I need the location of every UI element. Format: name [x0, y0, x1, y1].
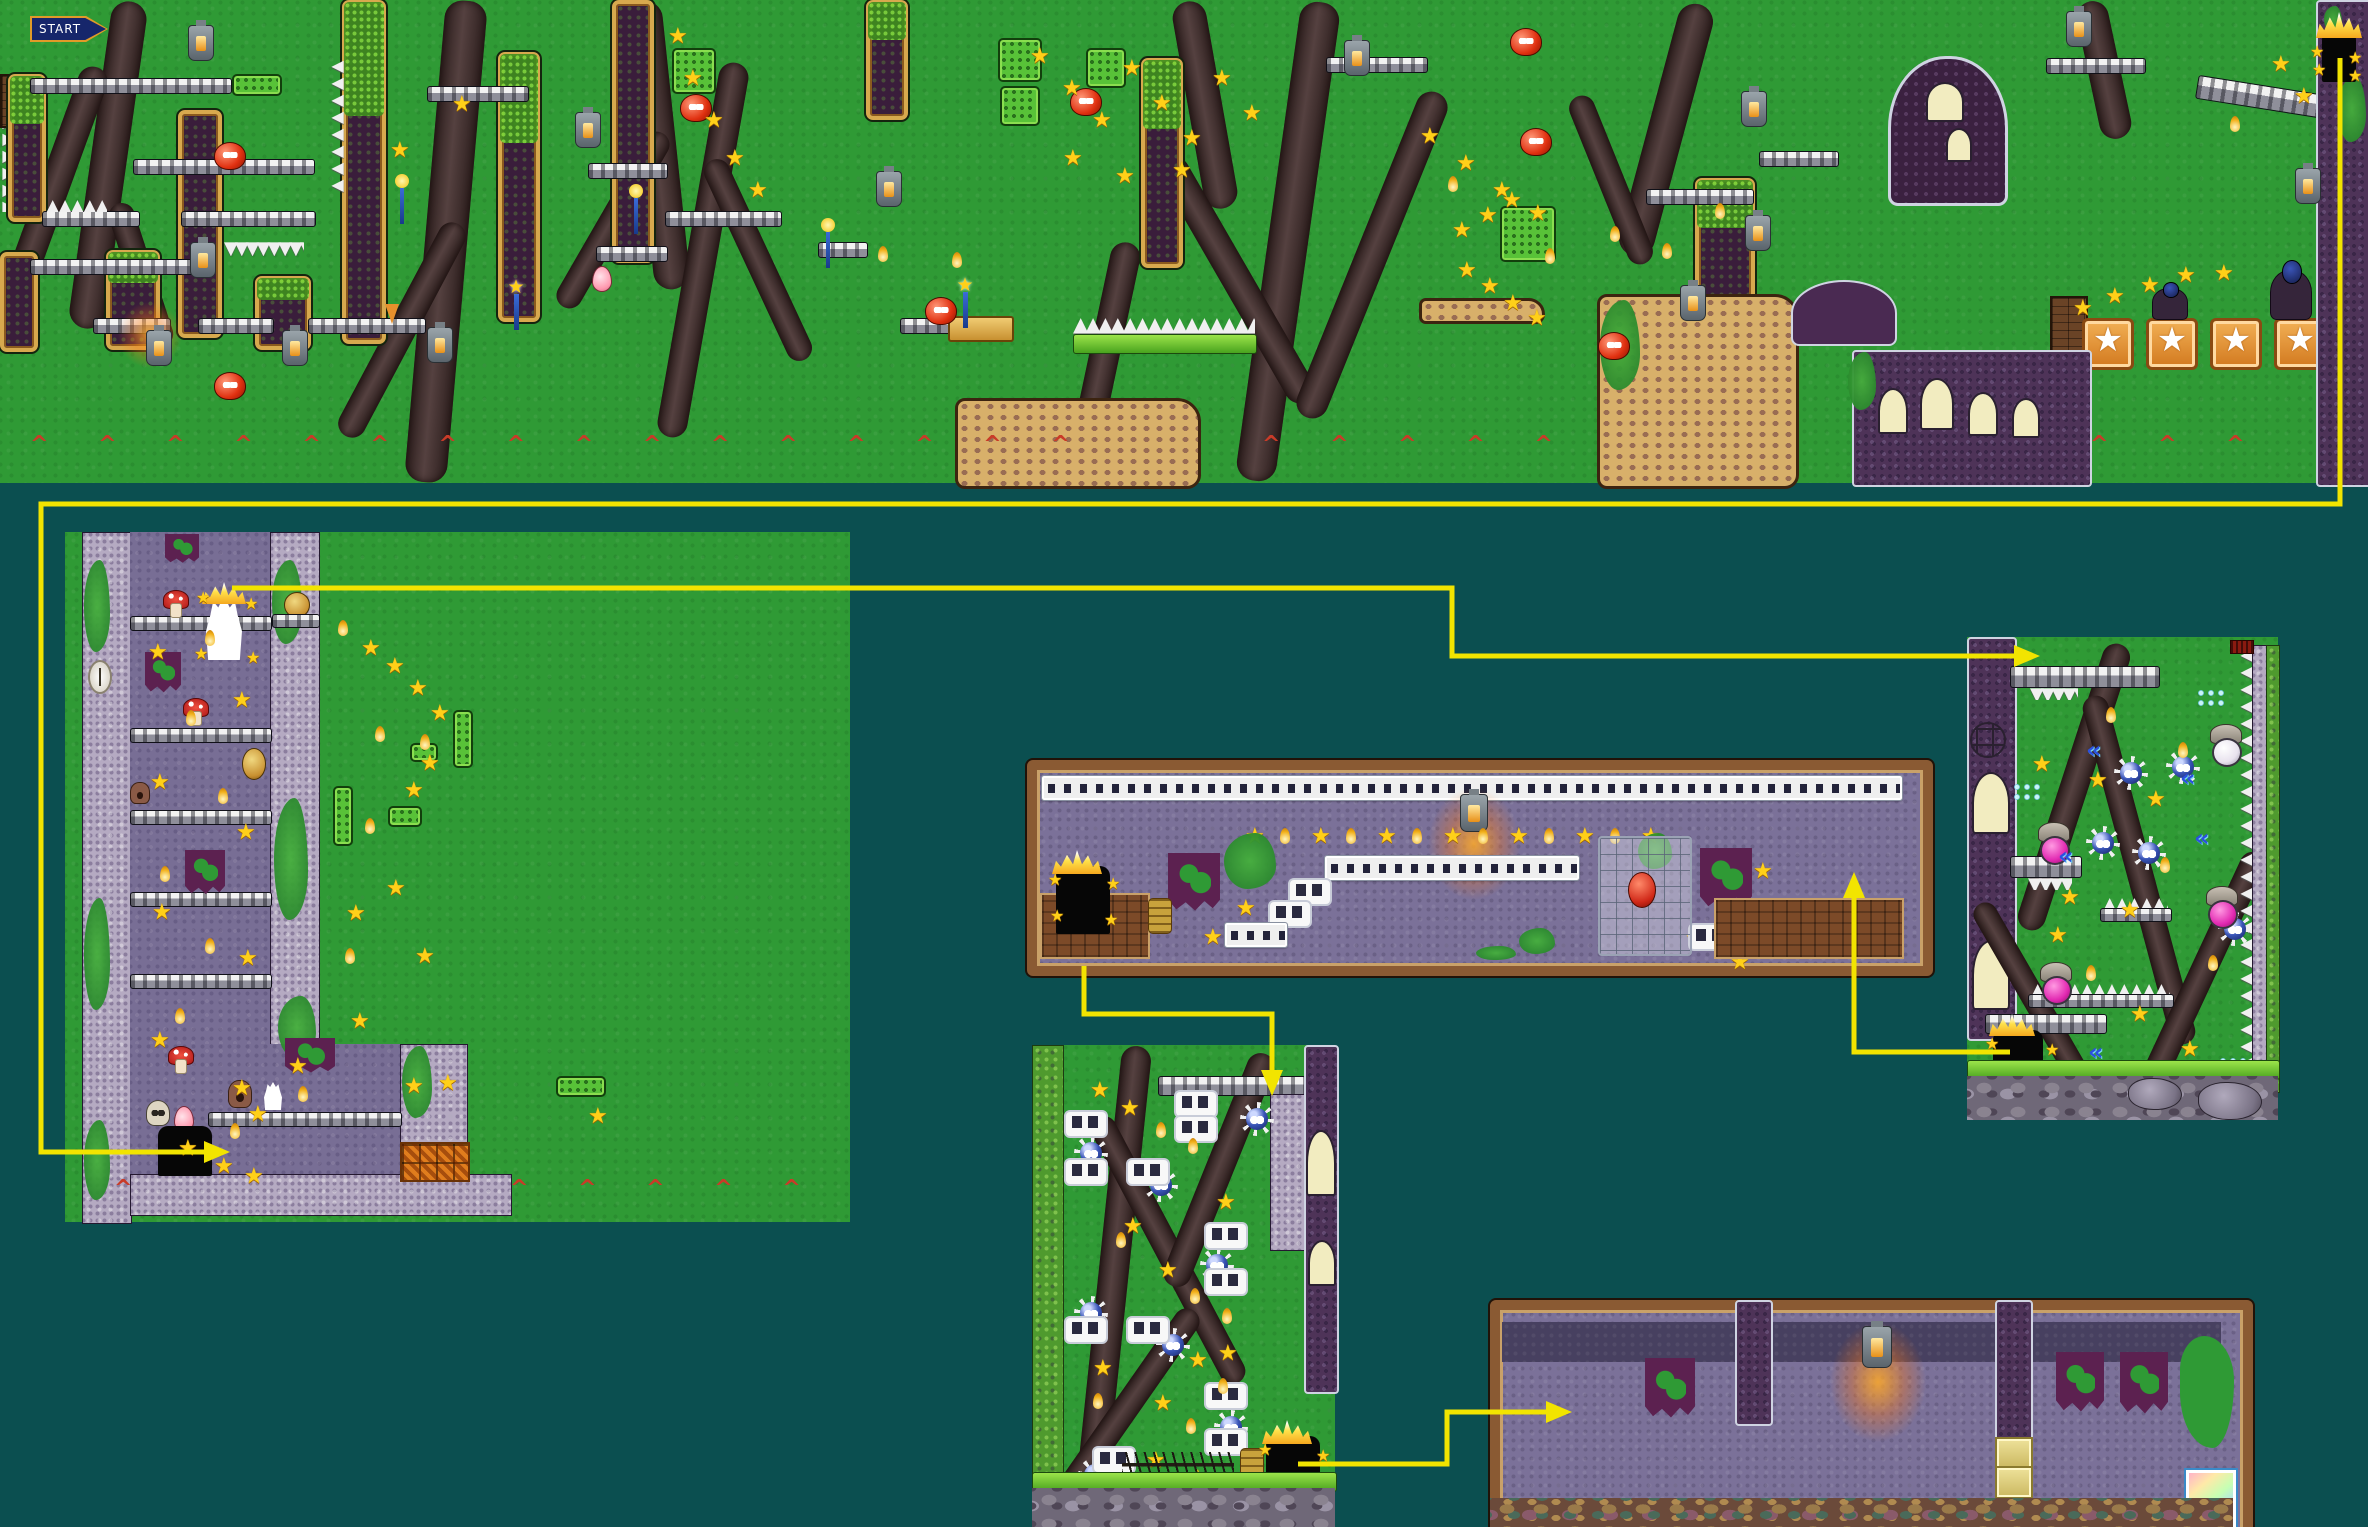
platform [427, 86, 529, 102]
dome [1308, 1240, 1336, 1286]
star [1443, 826, 1465, 848]
star [1172, 160, 1194, 182]
star [1216, 1192, 1238, 1214]
platform [2046, 58, 2146, 74]
lantern [1680, 285, 1706, 321]
flyerw [2208, 724, 2242, 764]
bush [232, 74, 282, 96]
ghost [130, 782, 150, 804]
dome [2012, 398, 2040, 438]
star [2294, 86, 2316, 108]
star [346, 903, 368, 925]
whiterow [1325, 856, 1579, 880]
spikes-up [1073, 314, 1255, 336]
platform [181, 211, 316, 227]
whitepair [1126, 1158, 1170, 1186]
star [390, 140, 412, 162]
star [2180, 1039, 2202, 1061]
groundcarved [1714, 898, 1904, 959]
dome [1920, 378, 1954, 430]
candle [365, 818, 375, 834]
mosswall [2266, 645, 2280, 1093]
barrel [1148, 898, 1172, 934]
star [1528, 203, 1550, 225]
platform [30, 78, 232, 94]
candle [1188, 1138, 1198, 1154]
candle [230, 1123, 240, 1139]
lantern [188, 25, 214, 61]
ballpole [628, 184, 644, 234]
star [1115, 166, 1137, 188]
star [1104, 912, 1120, 928]
star [2348, 50, 2364, 66]
star [385, 656, 407, 678]
bush [1000, 86, 1040, 126]
redenemy [1520, 128, 1552, 156]
dome [1968, 392, 1998, 436]
banner [2056, 1352, 2104, 1414]
candle [1116, 1232, 1126, 1248]
lantern [190, 242, 216, 278]
chevblue [2086, 738, 2102, 762]
star [2088, 770, 2110, 792]
star [2348, 68, 2364, 84]
tomato [1628, 872, 1656, 908]
moss [84, 898, 110, 1010]
whitepair [1064, 1316, 1108, 1344]
whitepair [1204, 1222, 1248, 1250]
star [1152, 93, 1174, 115]
candle [1222, 1308, 1232, 1324]
grass [1073, 334, 1257, 354]
star [1030, 46, 1052, 68]
ballpole [820, 218, 836, 268]
platform [198, 318, 274, 334]
pinkdrop [592, 266, 612, 292]
candle [1218, 1378, 1228, 1394]
spikes-left [331, 56, 345, 196]
candle [1412, 828, 1422, 844]
lantern [427, 327, 453, 363]
star [1457, 260, 1479, 282]
star [2032, 754, 2054, 776]
spikeball [2086, 826, 2120, 860]
star [704, 110, 726, 132]
debris [1490, 1498, 2233, 1527]
moss [2338, 76, 2366, 142]
platform [1759, 151, 1839, 167]
star [152, 902, 174, 924]
star [430, 703, 452, 725]
platform [1326, 57, 1428, 73]
candle [2208, 955, 2218, 971]
star [1480, 276, 1502, 298]
candle [1610, 226, 1620, 242]
star [150, 1030, 172, 1052]
lantern [1862, 1326, 1892, 1368]
star [288, 1056, 310, 1078]
lantern [1745, 215, 1771, 251]
candle [420, 734, 430, 750]
star [1050, 908, 1066, 924]
platform [130, 728, 272, 743]
candle [1662, 243, 1672, 259]
banner [2120, 1352, 2168, 1416]
star [1092, 110, 1114, 132]
star [236, 822, 258, 844]
lantern [282, 330, 308, 366]
candle [375, 726, 385, 742]
star [2130, 1004, 2152, 1026]
chevblue [2194, 826, 2210, 850]
star [232, 690, 254, 712]
star [1188, 1350, 1210, 1372]
bushv [453, 710, 473, 768]
flyerp [2204, 886, 2238, 926]
dome [1926, 82, 1964, 122]
moss [1519, 928, 1555, 954]
star [1509, 826, 1531, 848]
star [1090, 1080, 1112, 1102]
star [248, 1104, 270, 1126]
candle [298, 1086, 308, 1102]
candle [2106, 707, 2116, 723]
groundrock [1032, 1488, 1335, 1527]
star [2048, 925, 2070, 947]
eyecoin [88, 660, 112, 694]
star [1062, 78, 1084, 100]
star [415, 946, 437, 968]
star [214, 1156, 236, 1178]
candle [1156, 1122, 1166, 1138]
star [1985, 1036, 2001, 1052]
star [1218, 1343, 1240, 1365]
whitepair [1204, 1268, 1248, 1296]
star [438, 1073, 460, 1095]
purplemound [1791, 280, 1897, 346]
star [1478, 205, 1500, 227]
lantern [2295, 168, 2321, 204]
whitepair [1064, 1158, 1108, 1186]
platform [588, 163, 668, 179]
wallpurple [1995, 1300, 2033, 1441]
candle [1093, 1393, 1103, 1409]
star [178, 1138, 200, 1160]
candle [878, 246, 888, 262]
colg [342, 0, 386, 344]
moss [274, 798, 308, 920]
candle [1448, 176, 1458, 192]
platform [2010, 666, 2160, 688]
colg [866, 0, 908, 120]
platform [272, 614, 320, 628]
candle [205, 630, 215, 646]
candle [160, 866, 170, 882]
star [2060, 887, 2082, 909]
tnt [400, 1142, 470, 1182]
rosewin [1970, 722, 2006, 758]
candle [218, 788, 228, 804]
wallpurple [1735, 1300, 1773, 1426]
star [748, 180, 770, 202]
star [1063, 148, 1085, 170]
redline [30, 434, 1070, 458]
bush [556, 1076, 606, 1097]
candle [2160, 857, 2170, 873]
spikeball [2114, 756, 2148, 790]
candle [2086, 965, 2096, 981]
star [2271, 54, 2293, 76]
spikes-down [2030, 686, 2078, 700]
star [683, 68, 705, 90]
shell [242, 748, 266, 780]
candle [1346, 828, 1356, 844]
candle [2230, 116, 2240, 132]
star [2312, 62, 2328, 78]
redenemy [214, 142, 246, 170]
starblock [2146, 318, 2198, 370]
star [2310, 44, 2326, 60]
candle [186, 710, 196, 726]
dome [1972, 772, 2010, 834]
star [588, 1106, 610, 1128]
star [404, 1076, 426, 1098]
starlamp [506, 278, 526, 330]
cratetan [1995, 1466, 2033, 1499]
bubbles [2196, 688, 2224, 708]
level-map: START [0, 0, 2368, 1527]
flyerp [2038, 962, 2072, 1002]
candle [952, 252, 962, 268]
lantern [146, 330, 172, 366]
lantern [1344, 40, 1370, 76]
star [1203, 927, 1225, 949]
star [1236, 898, 1258, 920]
candle [2178, 742, 2188, 758]
candle [1544, 828, 1554, 844]
banner [185, 850, 225, 896]
rocks [2128, 1078, 2182, 1110]
start-banner-label: START [32, 22, 81, 36]
redchip [2230, 640, 2254, 654]
lantern [876, 171, 902, 207]
star [1153, 1393, 1175, 1415]
star [2176, 265, 2198, 287]
star [361, 638, 383, 660]
star [1503, 293, 1525, 315]
star [246, 650, 262, 666]
star [1242, 103, 1264, 125]
redenemy [925, 297, 957, 325]
star [1452, 220, 1474, 242]
platform [1646, 189, 1754, 205]
start-banner-plate: START [32, 18, 106, 40]
star [238, 948, 260, 970]
star [1106, 876, 1122, 892]
rocks [2198, 1082, 2262, 1120]
candle [175, 1008, 185, 1024]
candle [1280, 828, 1290, 844]
candle [345, 948, 355, 964]
whitepair [1174, 1115, 1218, 1143]
wallpurple [1304, 1045, 1339, 1394]
star [1158, 1260, 1180, 1282]
star [1527, 308, 1549, 330]
whiterow [1225, 923, 1287, 947]
ballpole [394, 174, 410, 224]
whitepair [1064, 1110, 1108, 1138]
redenemy [214, 372, 246, 400]
star [1420, 126, 1442, 148]
star [386, 878, 408, 900]
candle [338, 620, 348, 636]
spikes-down [224, 240, 304, 256]
stonewall [1270, 1094, 1306, 1251]
chevblue [2058, 844, 2074, 868]
star [1182, 128, 1204, 150]
star [1120, 1098, 1142, 1120]
mushroom [163, 590, 187, 618]
star [232, 1078, 254, 1100]
redline [1262, 434, 1598, 458]
lantern [2066, 11, 2092, 47]
archstruct [1888, 56, 2008, 206]
dome [1306, 1130, 1336, 1196]
platform [30, 259, 200, 275]
star [404, 780, 426, 802]
starlamp [955, 276, 975, 328]
spikeball [1240, 1102, 1274, 1136]
moss [1224, 833, 1276, 889]
platform [596, 246, 668, 262]
skull [146, 1100, 170, 1126]
star [452, 94, 474, 116]
star [1377, 826, 1399, 848]
star [1212, 68, 1234, 90]
redline [510, 1178, 848, 1202]
platform [308, 318, 426, 334]
star [2146, 789, 2168, 811]
redenemy [1510, 28, 1542, 56]
star [2140, 275, 2162, 297]
moss [84, 560, 110, 652]
bubbles [2012, 782, 2040, 802]
platform [665, 211, 782, 227]
candle [1545, 248, 1555, 264]
bush [388, 806, 422, 827]
redline [114, 1178, 158, 1202]
lantern [1741, 91, 1767, 127]
star [244, 1166, 266, 1188]
star [725, 148, 747, 170]
banner [165, 534, 199, 564]
star [2045, 1042, 2061, 1058]
redline [2090, 434, 2280, 458]
platform [130, 616, 272, 631]
starblock [2210, 318, 2262, 370]
star [668, 26, 690, 48]
star [1753, 861, 1775, 883]
bushv [333, 786, 353, 846]
star [150, 772, 172, 794]
star [1311, 826, 1333, 848]
lantern [575, 112, 601, 148]
cannon [2270, 270, 2312, 320]
star [1122, 58, 1144, 80]
star [2214, 263, 2236, 285]
star [2120, 900, 2142, 922]
platform [130, 974, 272, 989]
banner [1645, 1358, 1695, 1420]
star [1093, 1358, 1115, 1380]
spikes-up [45, 196, 107, 212]
platform [42, 211, 140, 227]
candle [1186, 1418, 1196, 1434]
star [1048, 872, 1064, 888]
star [408, 678, 430, 700]
mosswall [1032, 1045, 1064, 1502]
star [2105, 286, 2127, 308]
bush [1086, 48, 1126, 88]
star [1258, 1442, 1274, 1458]
star [1575, 826, 1597, 848]
moss [1476, 946, 1516, 960]
chevblue [2180, 766, 2196, 790]
star [1502, 190, 1524, 212]
star [148, 642, 170, 664]
star [196, 590, 212, 606]
candle [1190, 1288, 1200, 1304]
star [1456, 153, 1478, 175]
candle [205, 938, 215, 954]
dome [1946, 128, 1972, 162]
spikes-left [2234, 645, 2254, 1091]
star [420, 753, 442, 775]
star [244, 596, 260, 612]
dome [1878, 388, 1908, 434]
colg [8, 74, 46, 222]
candle [1715, 203, 1725, 219]
moss [1848, 352, 1876, 410]
candle [1478, 828, 1488, 844]
star [194, 646, 210, 662]
banner [1168, 853, 1220, 913]
moss [84, 1120, 110, 1200]
star [1316, 1448, 1332, 1464]
whitepair [1174, 1090, 1218, 1118]
star [350, 1011, 372, 1033]
whitepair [1126, 1316, 1170, 1344]
star [2073, 298, 2095, 320]
redenemy [1598, 332, 1630, 360]
star [1123, 1216, 1145, 1238]
